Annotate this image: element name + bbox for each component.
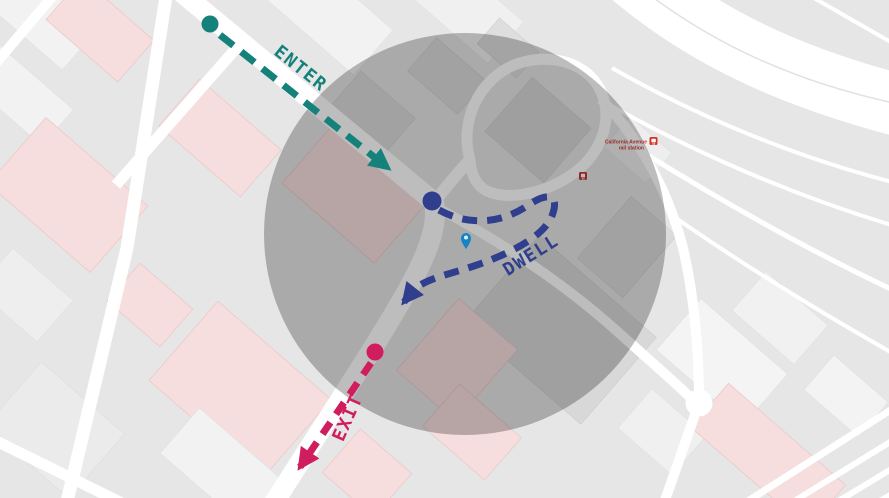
enter-start-dot [202, 16, 219, 33]
dwell-start-dot [423, 192, 442, 211]
rail-station-icon [650, 137, 658, 145]
exit-start-dot [367, 344, 384, 361]
map-canvas[interactable]: California Avenue rail station ENTER DWE… [0, 0, 889, 498]
geofence-map-visualization: California Avenue rail station ENTER DWE… [0, 0, 889, 498]
